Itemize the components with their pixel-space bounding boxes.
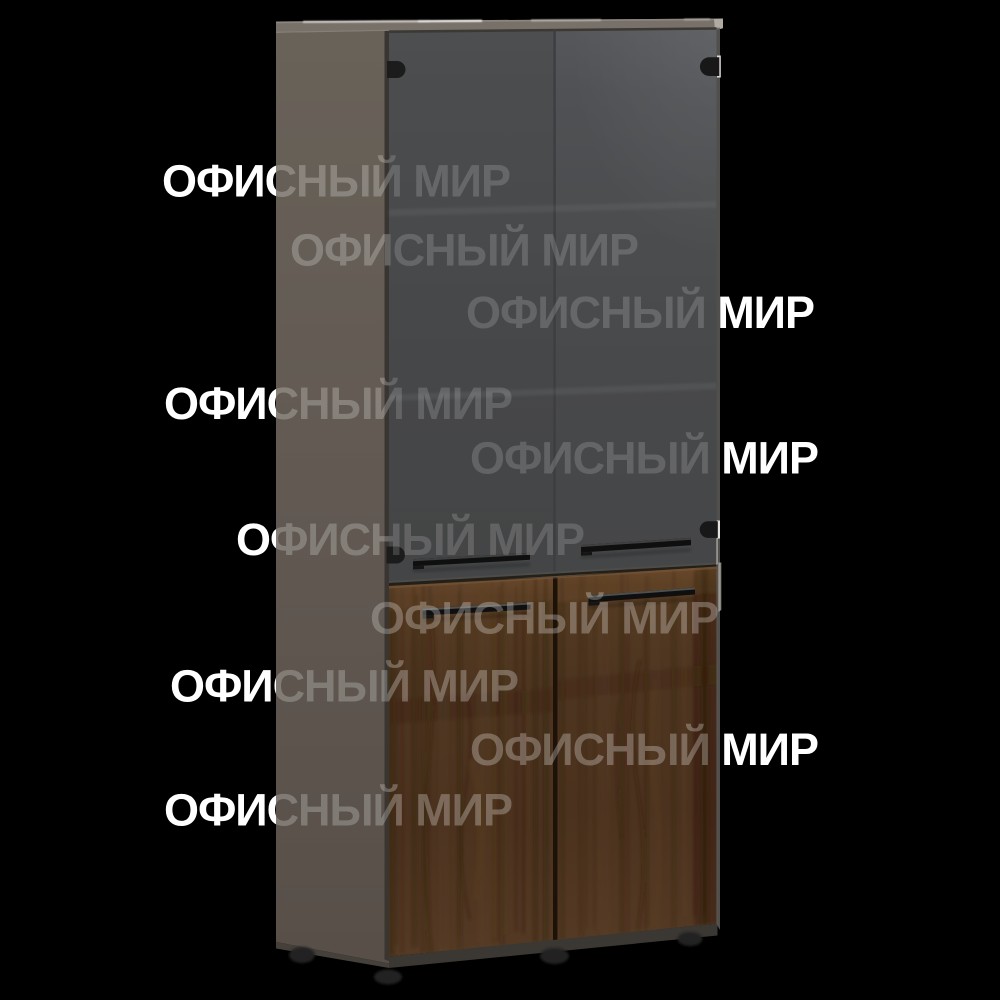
svg-text:ОФИСНЫЙ МИР: ОФИСНЫЙ МИР (370, 593, 718, 644)
